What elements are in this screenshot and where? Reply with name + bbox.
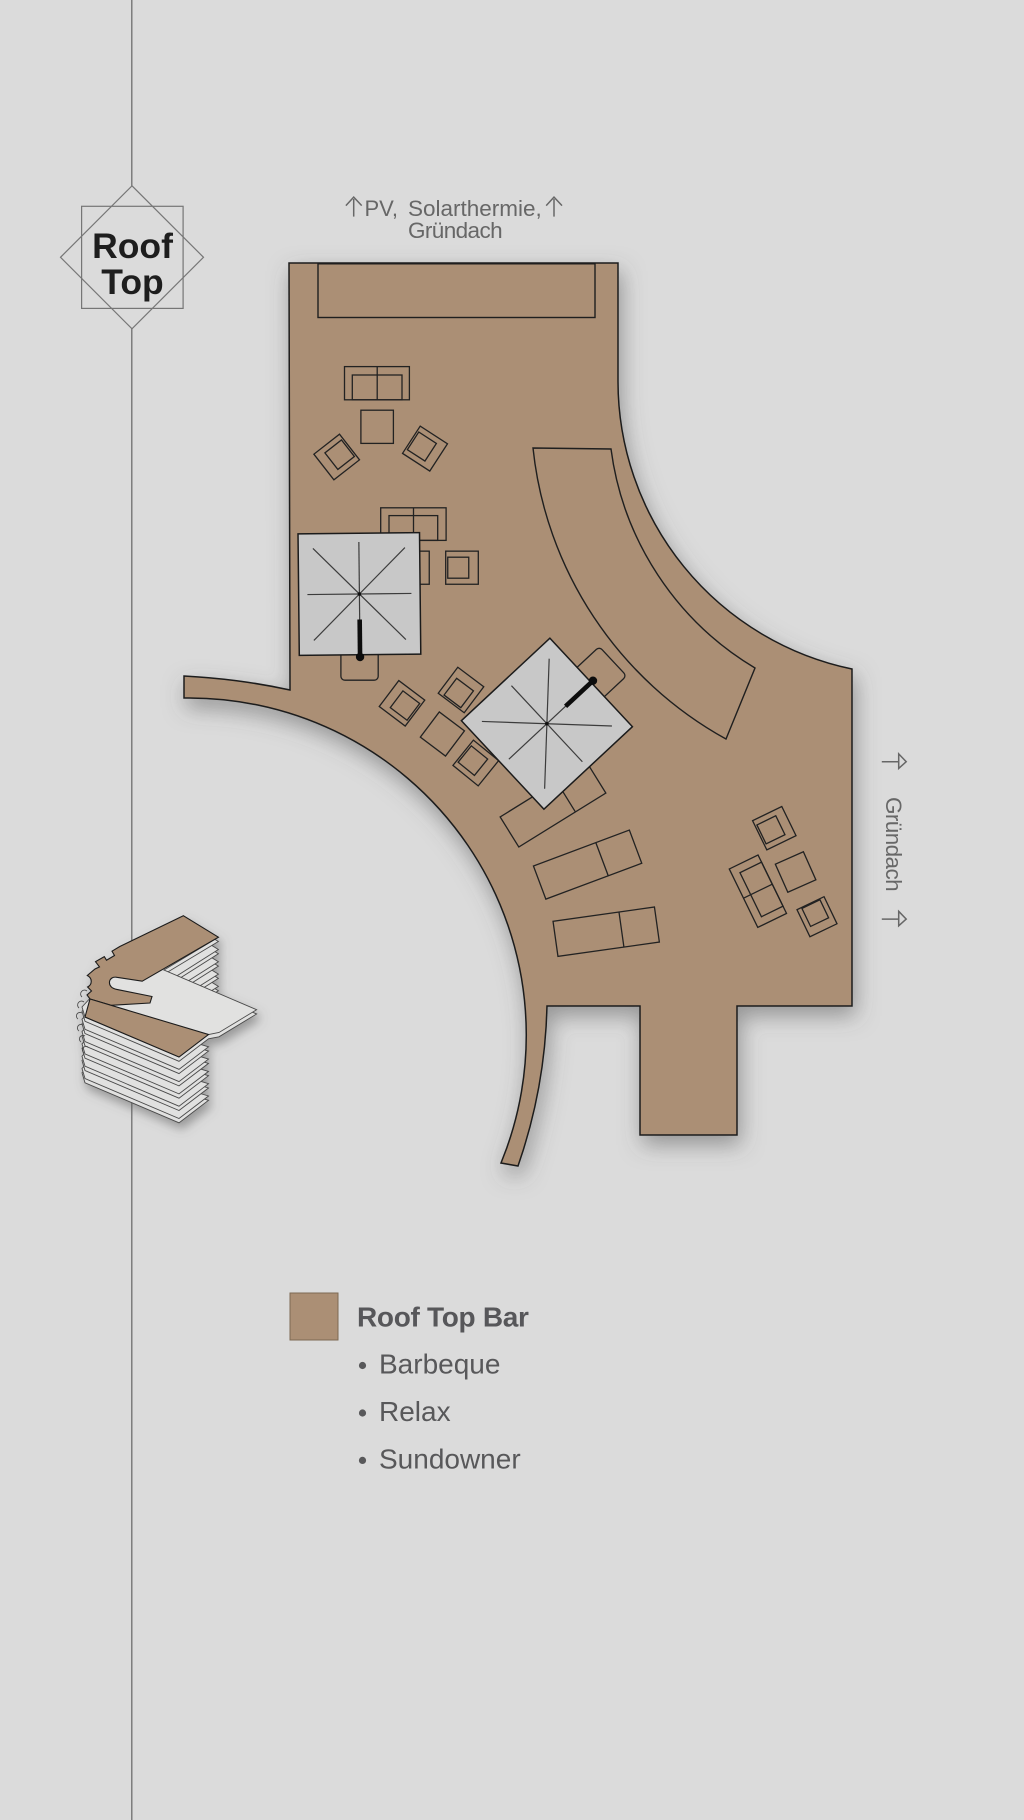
- svg-text:Gründach: Gründach: [881, 797, 906, 891]
- svg-text:PV,: PV,: [365, 196, 398, 221]
- svg-text:Relax: Relax: [379, 1396, 451, 1427]
- svg-text:Roof Top Bar: Roof Top Bar: [357, 1301, 529, 1332]
- svg-text:Gründach: Gründach: [408, 218, 502, 243]
- svg-text:Sundowner: Sundowner: [379, 1444, 521, 1475]
- svg-text:Top: Top: [101, 262, 163, 302]
- svg-text:Roof: Roof: [92, 226, 173, 266]
- svg-text:Barbeque: Barbeque: [379, 1349, 500, 1380]
